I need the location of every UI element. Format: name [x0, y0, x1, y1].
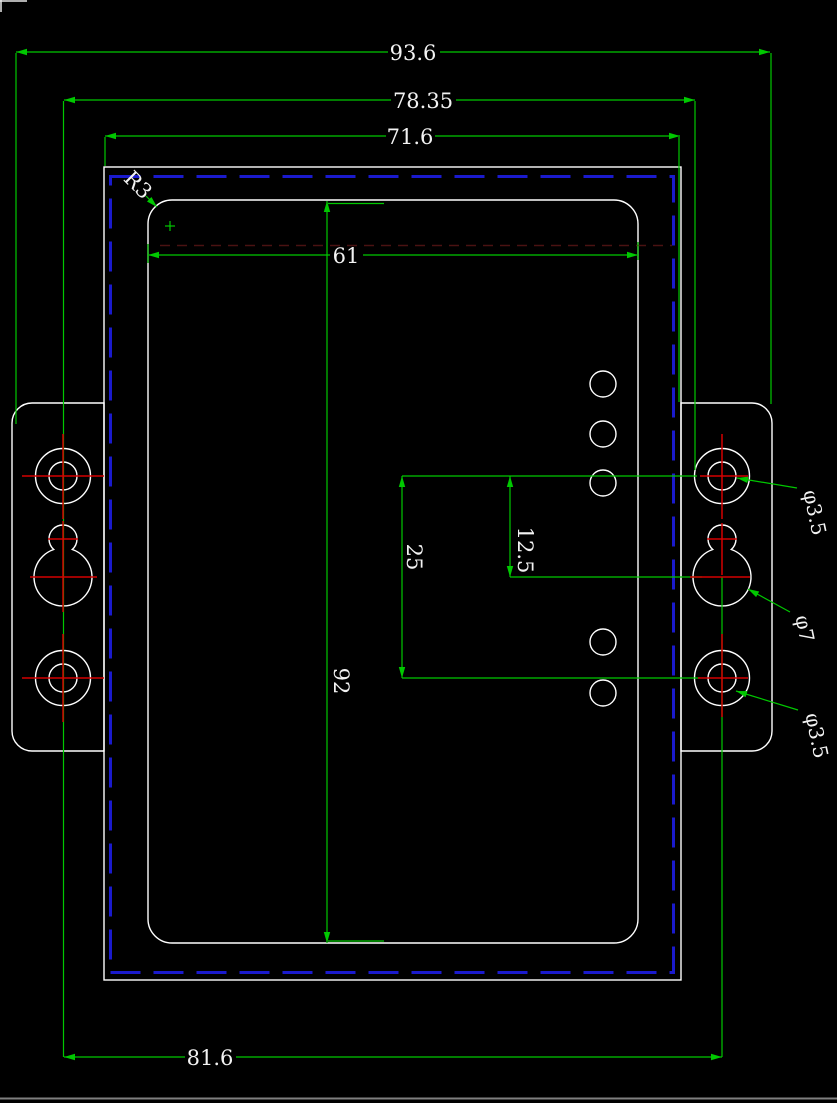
cad-drawing: 93.6 78.35 71.6 61 92 25 12.5 81.6 R3 φ3…: [0, 0, 837, 1103]
dim-text-flange-span: 78.35: [393, 89, 453, 113]
dim-text-lid-height: 92: [329, 668, 353, 695]
dim-text-lid-width: 61: [333, 244, 360, 268]
dim-text-body-width: 71.6: [387, 125, 434, 149]
body-hole-4: [590, 629, 616, 655]
body-hole-2: [590, 421, 616, 447]
dim-text-hole-pitch: 25: [402, 544, 426, 571]
label-bottom-hole-diameter: φ3.5: [800, 711, 833, 761]
body-hole-5: [590, 680, 616, 706]
dim-text-mounting-span: 81.6: [187, 1046, 234, 1070]
body-hole-1: [590, 371, 616, 397]
hidden-inner-rect: [111, 177, 674, 973]
dim-text-hole-offset: 12.5: [513, 527, 537, 574]
label-keyhole-diameter: φ7: [790, 613, 819, 644]
dim-text-overall-width: 93.6: [390, 41, 437, 65]
center-marks: [22, 434, 750, 722]
lid-rounded-rect: [148, 200, 638, 943]
cad-viewport[interactable]: 93.6 78.35 71.6 61 92 25 12.5 81.6 R3 φ3…: [0, 0, 837, 1103]
body-hole-3: [590, 470, 616, 496]
body-outer-rect: [104, 167, 681, 980]
label-top-hole-diameter: φ3.5: [798, 488, 831, 538]
